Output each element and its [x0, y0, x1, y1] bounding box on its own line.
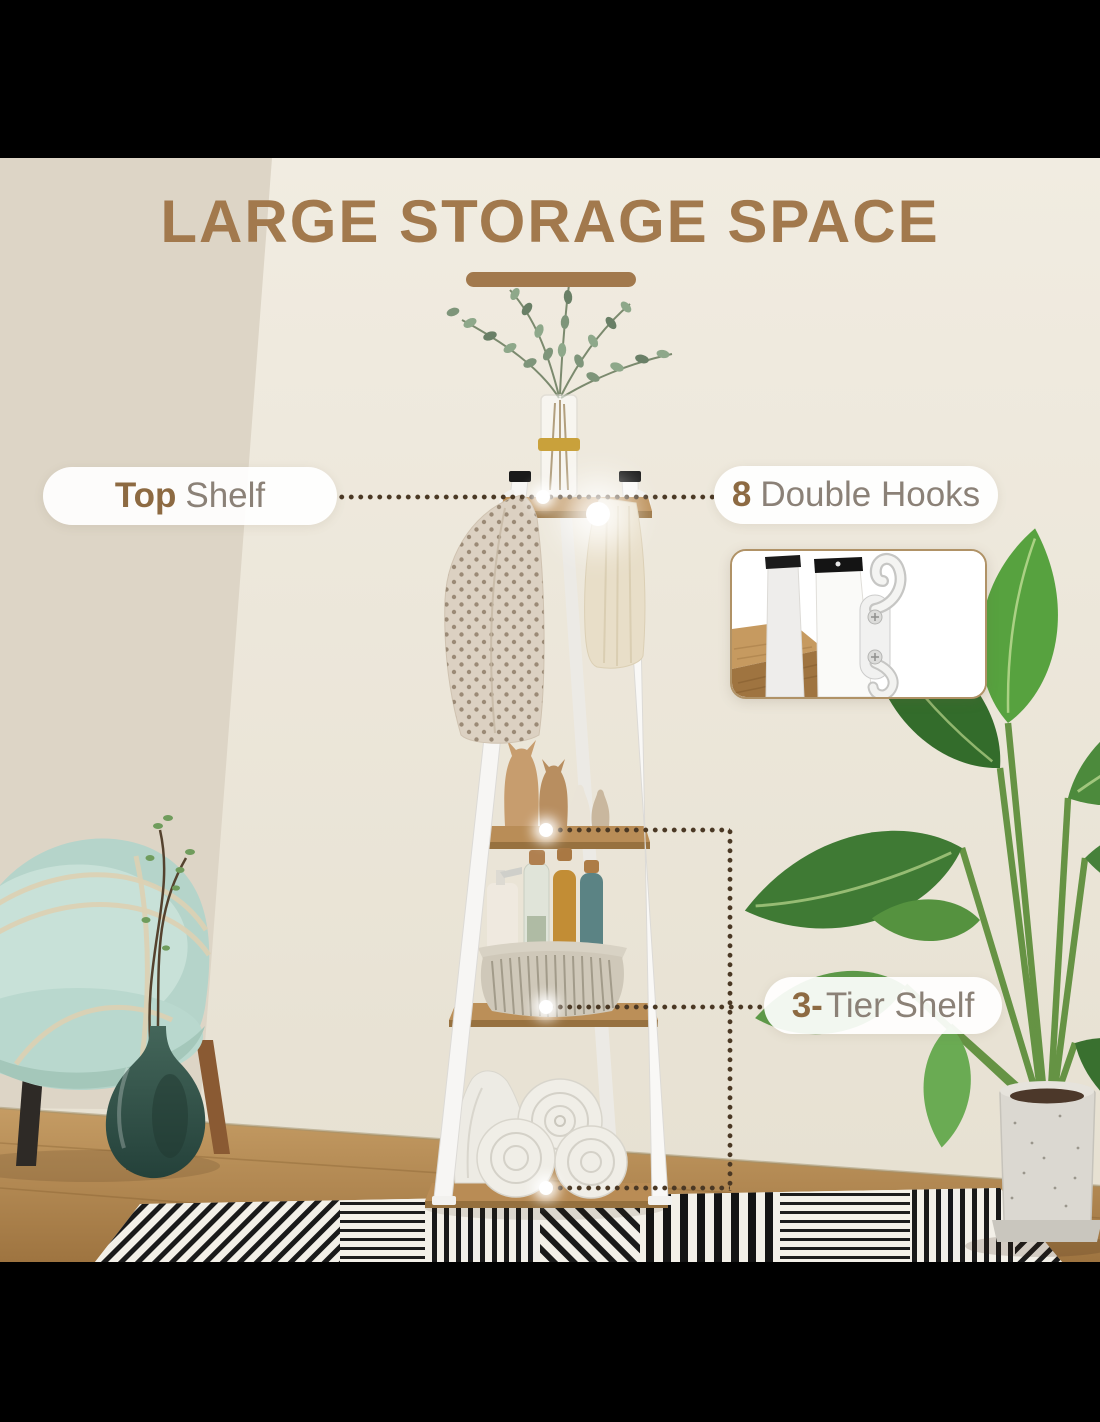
callout-top-shelf-highlight: Top — [115, 476, 177, 516]
double-hook-closeup-icon — [732, 551, 985, 697]
callout-top-shelf: Top Shelf — [43, 467, 337, 525]
callout-double-hooks-highlight: 8 — [732, 475, 751, 515]
plant-pot — [992, 1081, 1100, 1242]
callout-3-tier-shelf-label: Tier Shelf — [826, 986, 974, 1026]
dotted-line-shelf-3 — [546, 1185, 730, 1191]
dotted-line-bracket — [727, 827, 733, 1191]
product-image: LARGE STORAGE SPACE Top Shelf 8 Double H… — [0, 0, 1100, 1422]
headline: LARGE STORAGE SPACE — [0, 190, 1100, 253]
room-scene — [0, 158, 1100, 1262]
headline-underline — [466, 272, 636, 287]
callout-double-hooks: 8 Double Hooks — [714, 466, 998, 524]
glow-marker-shelf-1 — [539, 823, 553, 837]
callout-3-tier-shelf-highlight: 3- — [792, 986, 823, 1026]
hook-detail-inset — [730, 549, 987, 699]
glow-marker-hook-left — [536, 490, 550, 504]
glow-marker-hook-right — [586, 502, 610, 526]
glow-marker-shelf-2 — [539, 1000, 553, 1014]
dotted-line-shelf-1 — [546, 827, 730, 833]
glow-marker-shelf-3 — [539, 1181, 553, 1195]
photo-area — [0, 158, 1100, 1262]
callout-double-hooks-label: Double Hooks — [760, 475, 980, 515]
callout-3-tier-shelf: 3- Tier Shelf — [764, 977, 1002, 1034]
dotted-line-top-shelf — [337, 494, 714, 500]
callout-top-shelf-label: Shelf — [185, 476, 265, 516]
